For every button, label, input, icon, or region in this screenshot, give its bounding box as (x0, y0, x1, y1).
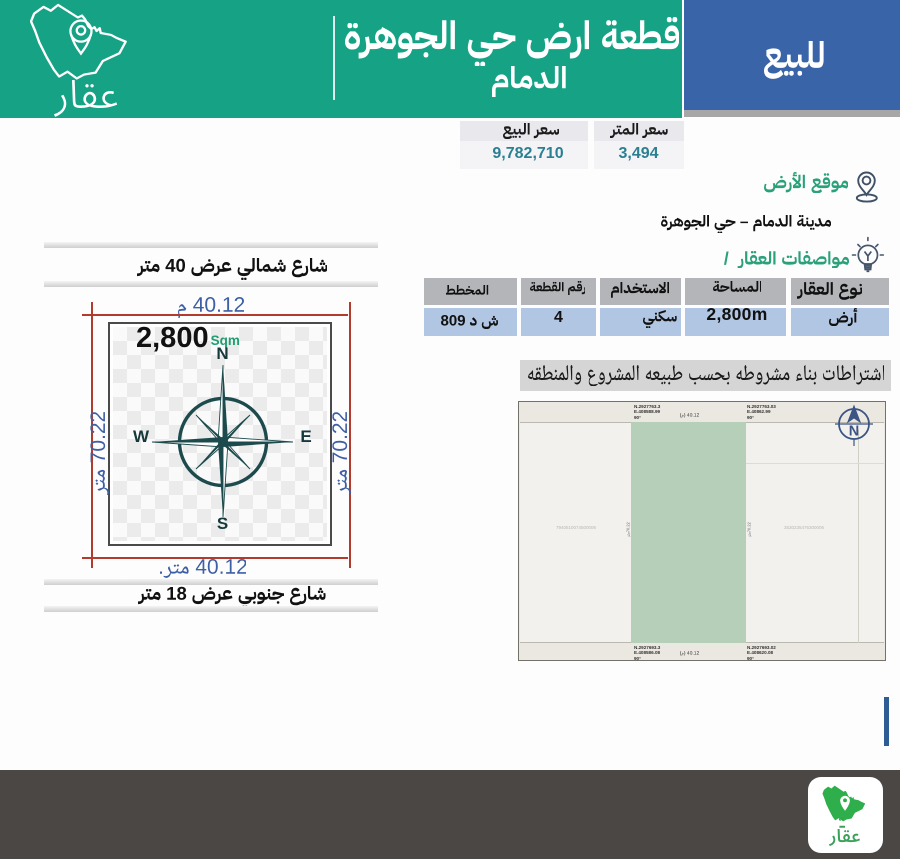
svg-text:N: N (849, 424, 859, 440)
